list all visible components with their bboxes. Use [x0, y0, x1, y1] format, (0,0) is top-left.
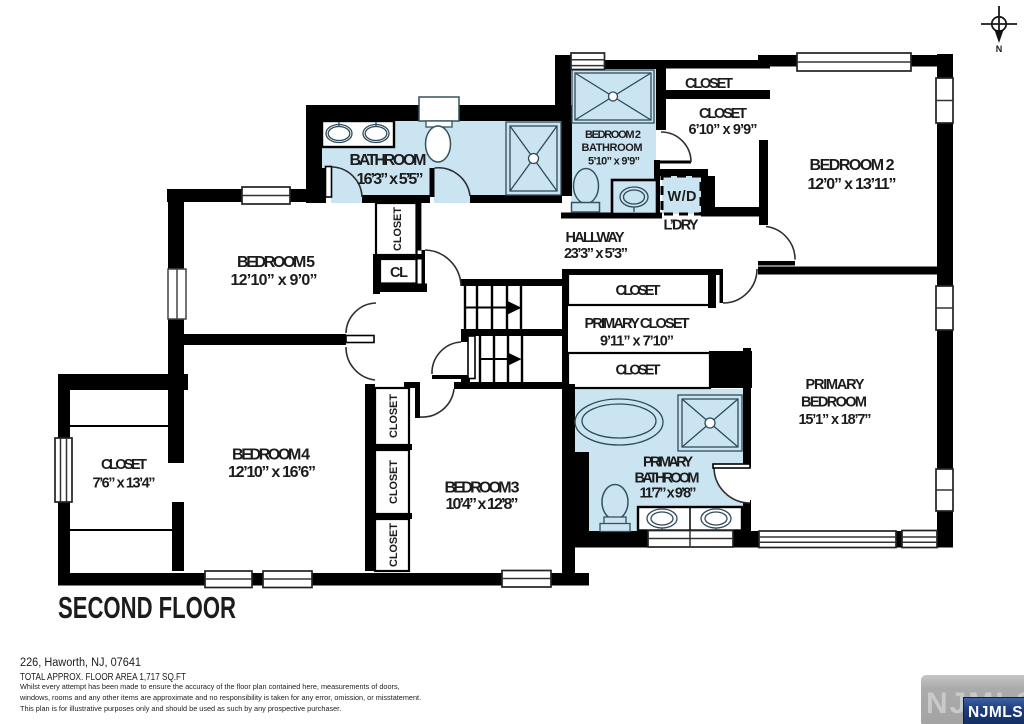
- svg-text:CL: CL: [390, 265, 408, 281]
- svg-text:CLOSET: CLOSET: [388, 460, 400, 504]
- svg-text:BATHROOM: BATHROOM: [582, 142, 643, 154]
- svg-text:CLOSET: CLOSET: [388, 523, 400, 567]
- svg-text:CLOSET: CLOSET: [616, 363, 661, 379]
- svg-text:L’DRY: L’DRY: [664, 218, 699, 234]
- svg-text:PRIMARY: PRIMARY: [806, 377, 865, 393]
- svg-text:9’11” x 7’10”: 9’11” x 7’10”: [600, 334, 674, 350]
- svg-text:10’4” x 12’8”: 10’4” x 12’8”: [446, 496, 519, 513]
- svg-text:6’10” x 9’9”: 6’10” x 9’9”: [689, 122, 758, 138]
- svg-text:HALLWAY: HALLWAY: [566, 230, 625, 246]
- svg-text:BEDROOM 2: BEDROOM 2: [585, 129, 641, 141]
- svg-text:CLOSET: CLOSET: [101, 457, 147, 473]
- svg-text:This plan is for illustrative: This plan is for illustrative purposes o…: [20, 704, 341, 713]
- svg-text:BATHROOM: BATHROOM: [635, 471, 700, 487]
- svg-text:BEDROOM 3: BEDROOM 3: [445, 480, 520, 497]
- svg-text:CLOSET: CLOSET: [616, 283, 661, 299]
- svg-text:7’6” x 13’4”: 7’6” x 13’4”: [93, 476, 156, 492]
- svg-text:PRIMARY: PRIMARY: [643, 455, 693, 471]
- svg-text:15’1” x 18’7”: 15’1” x 18’7”: [799, 412, 872, 428]
- svg-text:SECOND FLOOR: SECOND FLOOR: [58, 590, 236, 625]
- svg-text:12’10” x 16’6”: 12’10” x 16’6”: [228, 464, 316, 481]
- svg-text:BEDROOM 5: BEDROOM 5: [237, 254, 315, 271]
- svg-text:N: N: [996, 44, 1003, 54]
- svg-text:CLOSET: CLOSET: [392, 207, 404, 251]
- svg-text:BEDROOM 4: BEDROOM 4: [232, 447, 310, 464]
- svg-text:W/D: W/D: [668, 189, 697, 205]
- svg-text:CLOSET: CLOSET: [699, 106, 747, 122]
- svg-text:BEDROOM 2: BEDROOM 2: [810, 157, 895, 174]
- svg-text:NJMLS: NJMLS: [968, 704, 1023, 721]
- svg-text:11’7” x 9’8”: 11’7” x 9’8”: [640, 486, 697, 502]
- svg-text:226, Haworth, NJ, 07641: 226, Haworth, NJ, 07641: [20, 657, 141, 669]
- svg-text:CLOSET: CLOSET: [388, 394, 400, 438]
- svg-text:16’3” x 5’5”: 16’3” x 5’5”: [357, 171, 424, 188]
- svg-text:windows, rooms and any other i: windows, rooms and any other items are a…: [19, 693, 421, 702]
- svg-text:PRIMARY CLOSET: PRIMARY CLOSET: [585, 316, 690, 332]
- svg-text:12’10” x 9’0”: 12’10” x 9’0”: [231, 272, 318, 289]
- svg-text:CLOSET: CLOSET: [685, 76, 733, 92]
- svg-text:12’0” x 13’11”: 12’0” x 13’11”: [808, 176, 897, 193]
- svg-text:BATHROOM: BATHROOM: [350, 152, 427, 169]
- svg-text:23’3” x 5’3”: 23’3” x 5’3”: [564, 246, 628, 262]
- svg-text:Whilst every attempt has been: Whilst every attempt has been made to en…: [20, 682, 400, 691]
- svg-text:BEDROOM: BEDROOM: [801, 395, 867, 411]
- svg-text:5’10” x 9’9”: 5’10” x 9’9”: [588, 156, 640, 168]
